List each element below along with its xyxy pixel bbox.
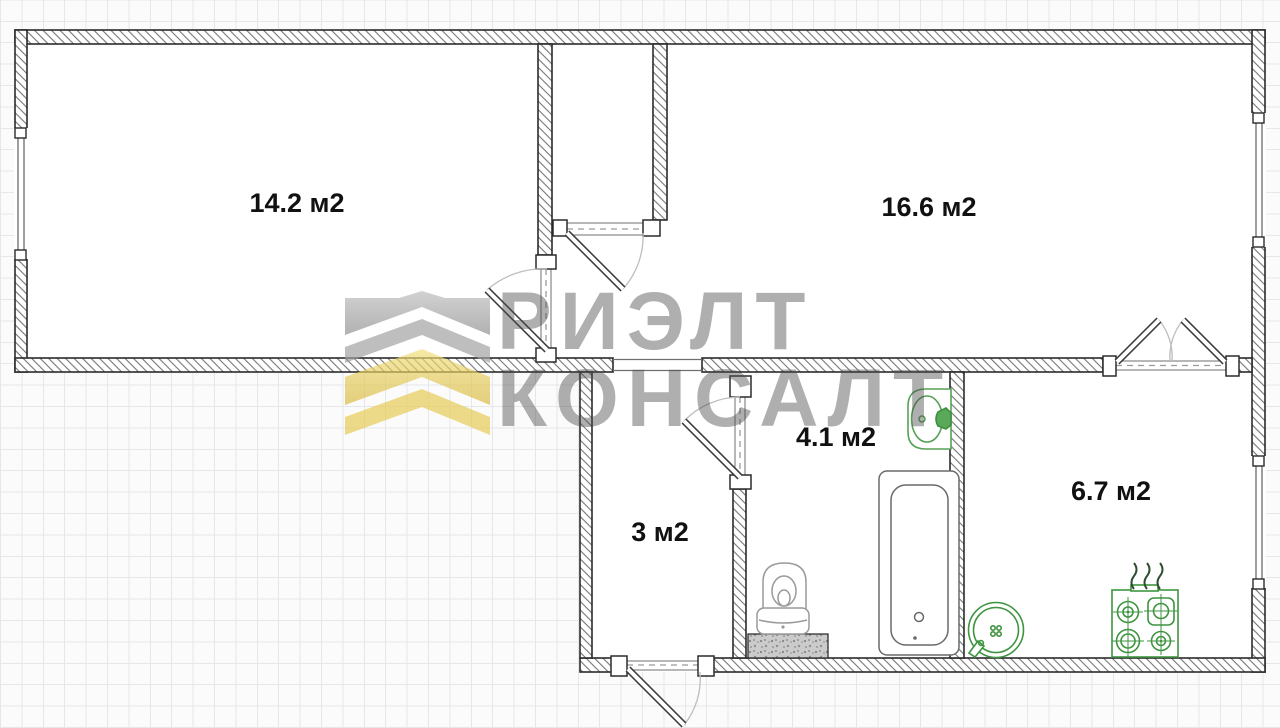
wall-top [15,30,1265,44]
room-label-living-room-2: 16.6 м2 [881,192,976,222]
wall-right-1 [1252,30,1265,115]
wall-room1-hall [538,44,552,255]
wall-bottom-right [700,658,1265,672]
window-right-room2 [1251,113,1266,247]
floor-plan-svg: РИЭЛТ КОНСАЛТ 14.2 м2 16.6 м2 4.1 м2 3 м… [0,0,1280,728]
wall-mid-right [1238,358,1252,372]
toilet [757,563,809,634]
room-label-bathroom: 4.1 м2 [796,422,876,452]
window-left [14,128,28,260]
vent-shaft [748,634,828,658]
watermark-word-2: КОНСАЛТ [497,353,951,444]
bathtub [879,471,959,655]
room-label-hallway: 3 м2 [631,517,689,547]
room-label-kitchen: 6.7 м2 [1071,476,1151,506]
wall-left-upper [15,30,27,130]
wall-vestibule-right [653,44,667,220]
floor-plan-canvas: РИЭЛТ КОНСАЛТ 14.2 м2 16.6 м2 4.1 м2 3 м… [0,0,1280,728]
wall-left-lower [15,257,27,372]
room-label-living-room-1: 14.2 м2 [249,188,344,218]
wall-hallway-bathroom [733,489,746,658]
wall-right-2 [1252,245,1265,458]
window-right-kitchen [1251,456,1266,589]
wall-bottom-left [580,658,613,672]
